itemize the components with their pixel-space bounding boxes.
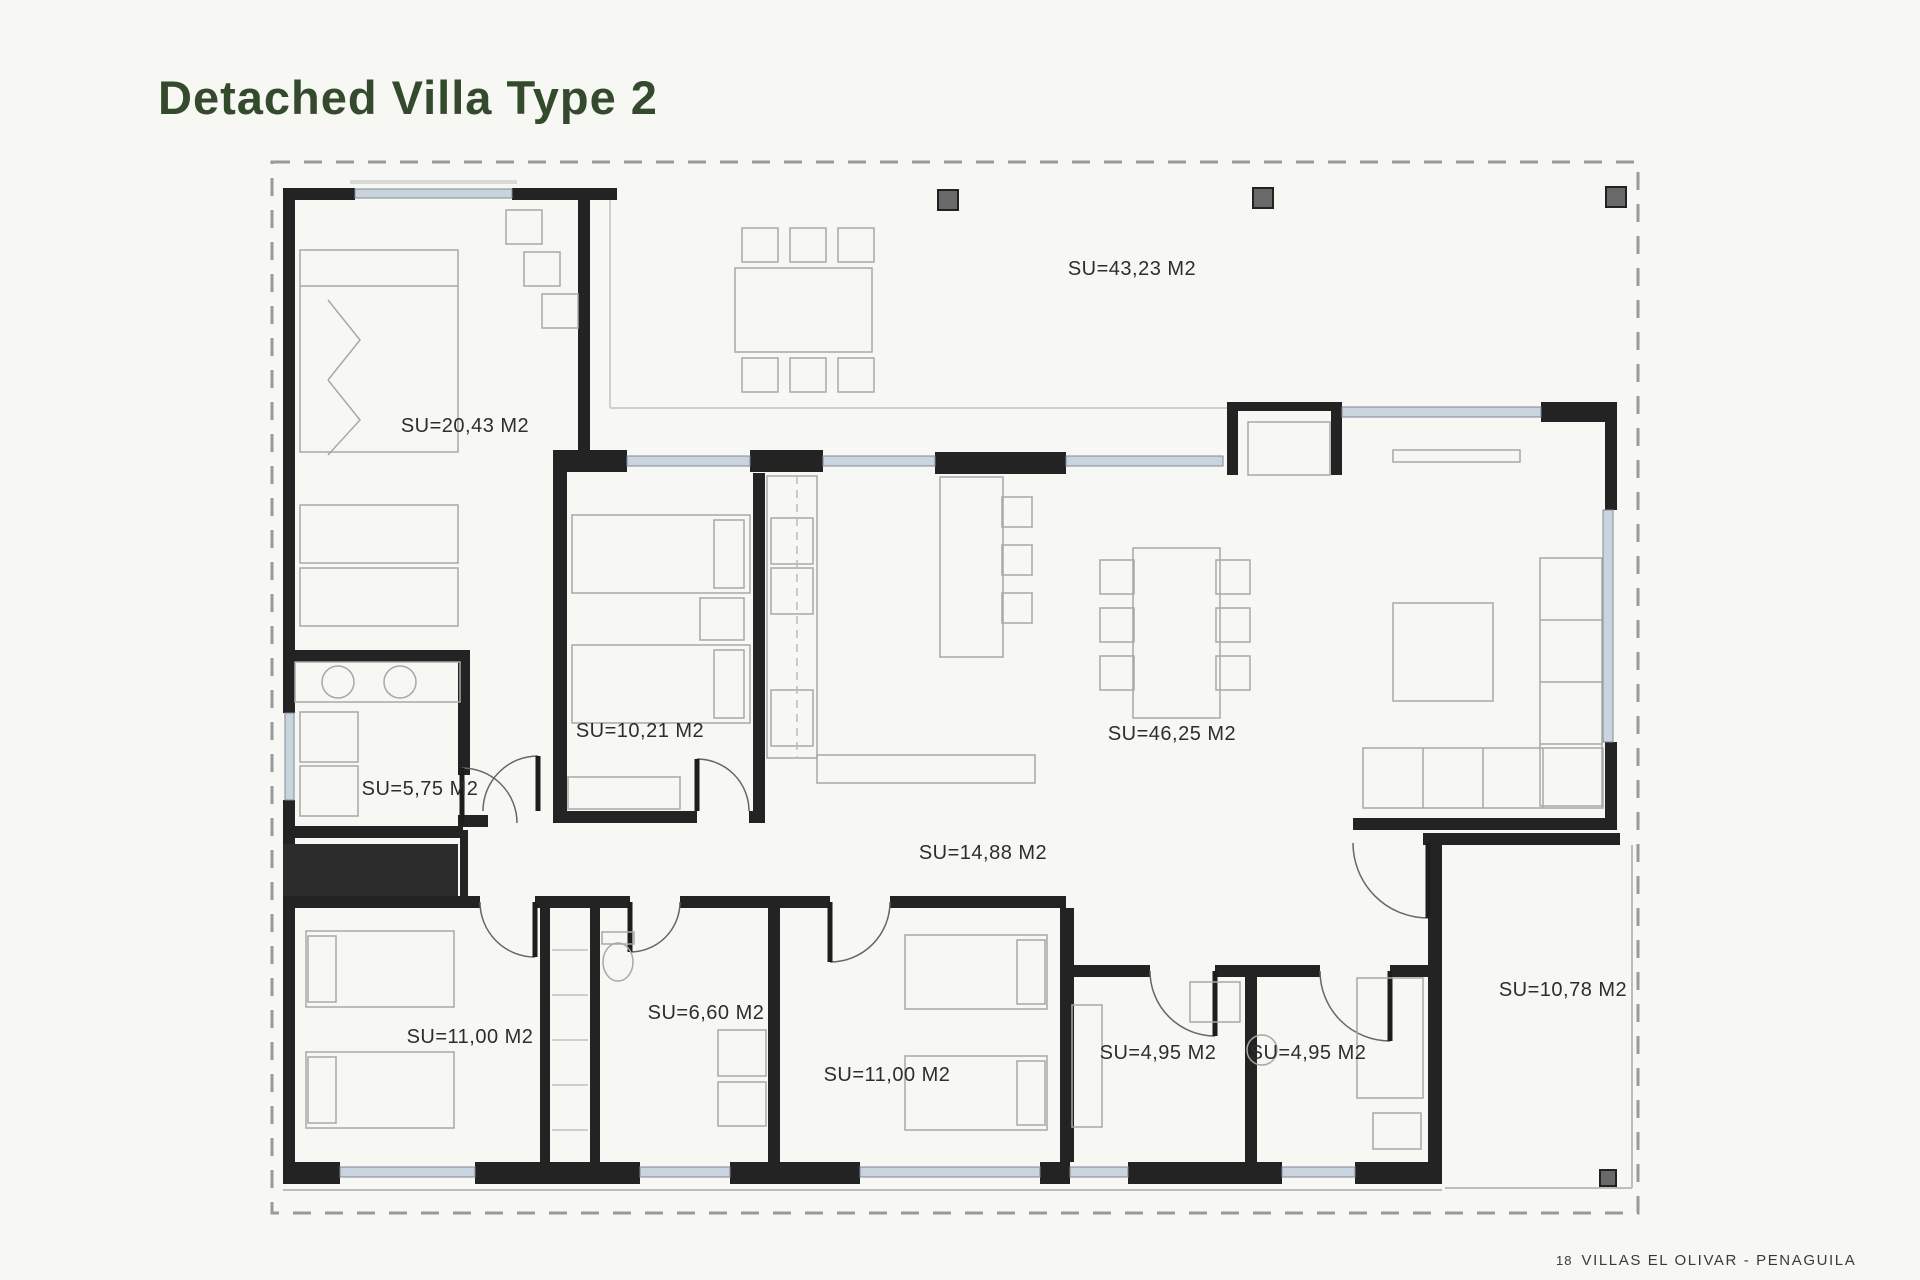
room-label-bathroom-1: SU=6,60 M2 [648,1002,765,1024]
structural-columns [938,187,1626,1186]
wardrobe [300,505,458,563]
footer-page-number: 18 [1556,1253,1572,1268]
tv-sideboard [1393,450,1520,462]
nightstand [524,252,560,286]
chair [542,294,578,328]
corner-sofa [1363,558,1603,808]
window [860,1167,1040,1177]
room-label-bedroom-3: SU=11,00 M2 [407,1026,534,1048]
window-sill [350,180,517,184]
room-label-terrace: SU=43,23 M2 [1068,258,1196,280]
room-label-bedroom-4: SU=11,00 M2 [824,1064,951,1086]
door-arc [1320,971,1390,1041]
nightstand [506,210,542,244]
room-label-laundry: SU=5,75 M2 [362,778,479,800]
column-icon [1606,187,1626,207]
dresser [568,777,680,809]
room-label-hallway: SU=14,88 M2 [919,842,1047,864]
shower [1072,1005,1102,1127]
window [627,456,750,466]
door-arc [483,756,538,811]
fireplace [1248,422,1330,475]
bathroom-fixtures [602,932,766,1126]
nightstand [700,598,744,640]
room-label-master-bedroom: SU=20,43 M2 [401,415,529,437]
door-arc [480,902,535,957]
room-label-porch: SU=10,78 M2 [1499,979,1627,1001]
room-label-bathroom-2: SU=4,95 M2 [1100,1042,1217,1064]
room-label-bathroom-3: SU=4,95 M2 [1250,1042,1367,1064]
stool [1002,593,1032,623]
closet-shelves [552,950,588,1130]
window [1603,510,1613,742]
footer-project-name: VILLAS EL OLIVAR - PENAGUILA [1581,1252,1856,1269]
door-arc [630,902,680,952]
window [1342,407,1541,417]
kitchen-island [940,477,1003,657]
door-arc [830,902,890,962]
footer: 18 VILLAS EL OLIVAR - PENAGUILA [1556,1252,1856,1269]
dining-table-set [1100,548,1250,718]
window [340,1167,475,1177]
terrace-table-set [735,228,874,392]
column-icon [1253,188,1273,208]
window [355,189,512,198]
column-icon [1600,1170,1616,1186]
stool [1002,545,1032,575]
entrance-door-arc [1353,843,1428,918]
door-arc [697,759,749,811]
door-arc [1150,971,1215,1036]
column-icon [938,190,958,210]
window [640,1167,730,1177]
window [1282,1167,1355,1177]
toilet [1373,1113,1421,1149]
floor-plan-drawing: SU=43,23 M2 SU=20,43 M2 SU=10,21 M2 SU=5… [0,0,1920,1280]
room-label-bedroom-2: SU=10,21 M2 [576,720,704,742]
window [823,456,935,466]
room-label-living: SU=46,25 M2 [1108,723,1236,745]
window [285,713,294,800]
single-beds [905,935,1047,1130]
wardrobe [300,568,458,626]
stool [1002,497,1032,527]
kitchen-counters [767,476,1035,783]
sliding-door-window [1066,456,1223,466]
coffee-table [1393,603,1493,701]
sheet: Detached Villa Type 2 [0,0,1920,1280]
counter [817,755,1035,783]
window [1070,1167,1128,1177]
furniture [295,210,1603,1149]
